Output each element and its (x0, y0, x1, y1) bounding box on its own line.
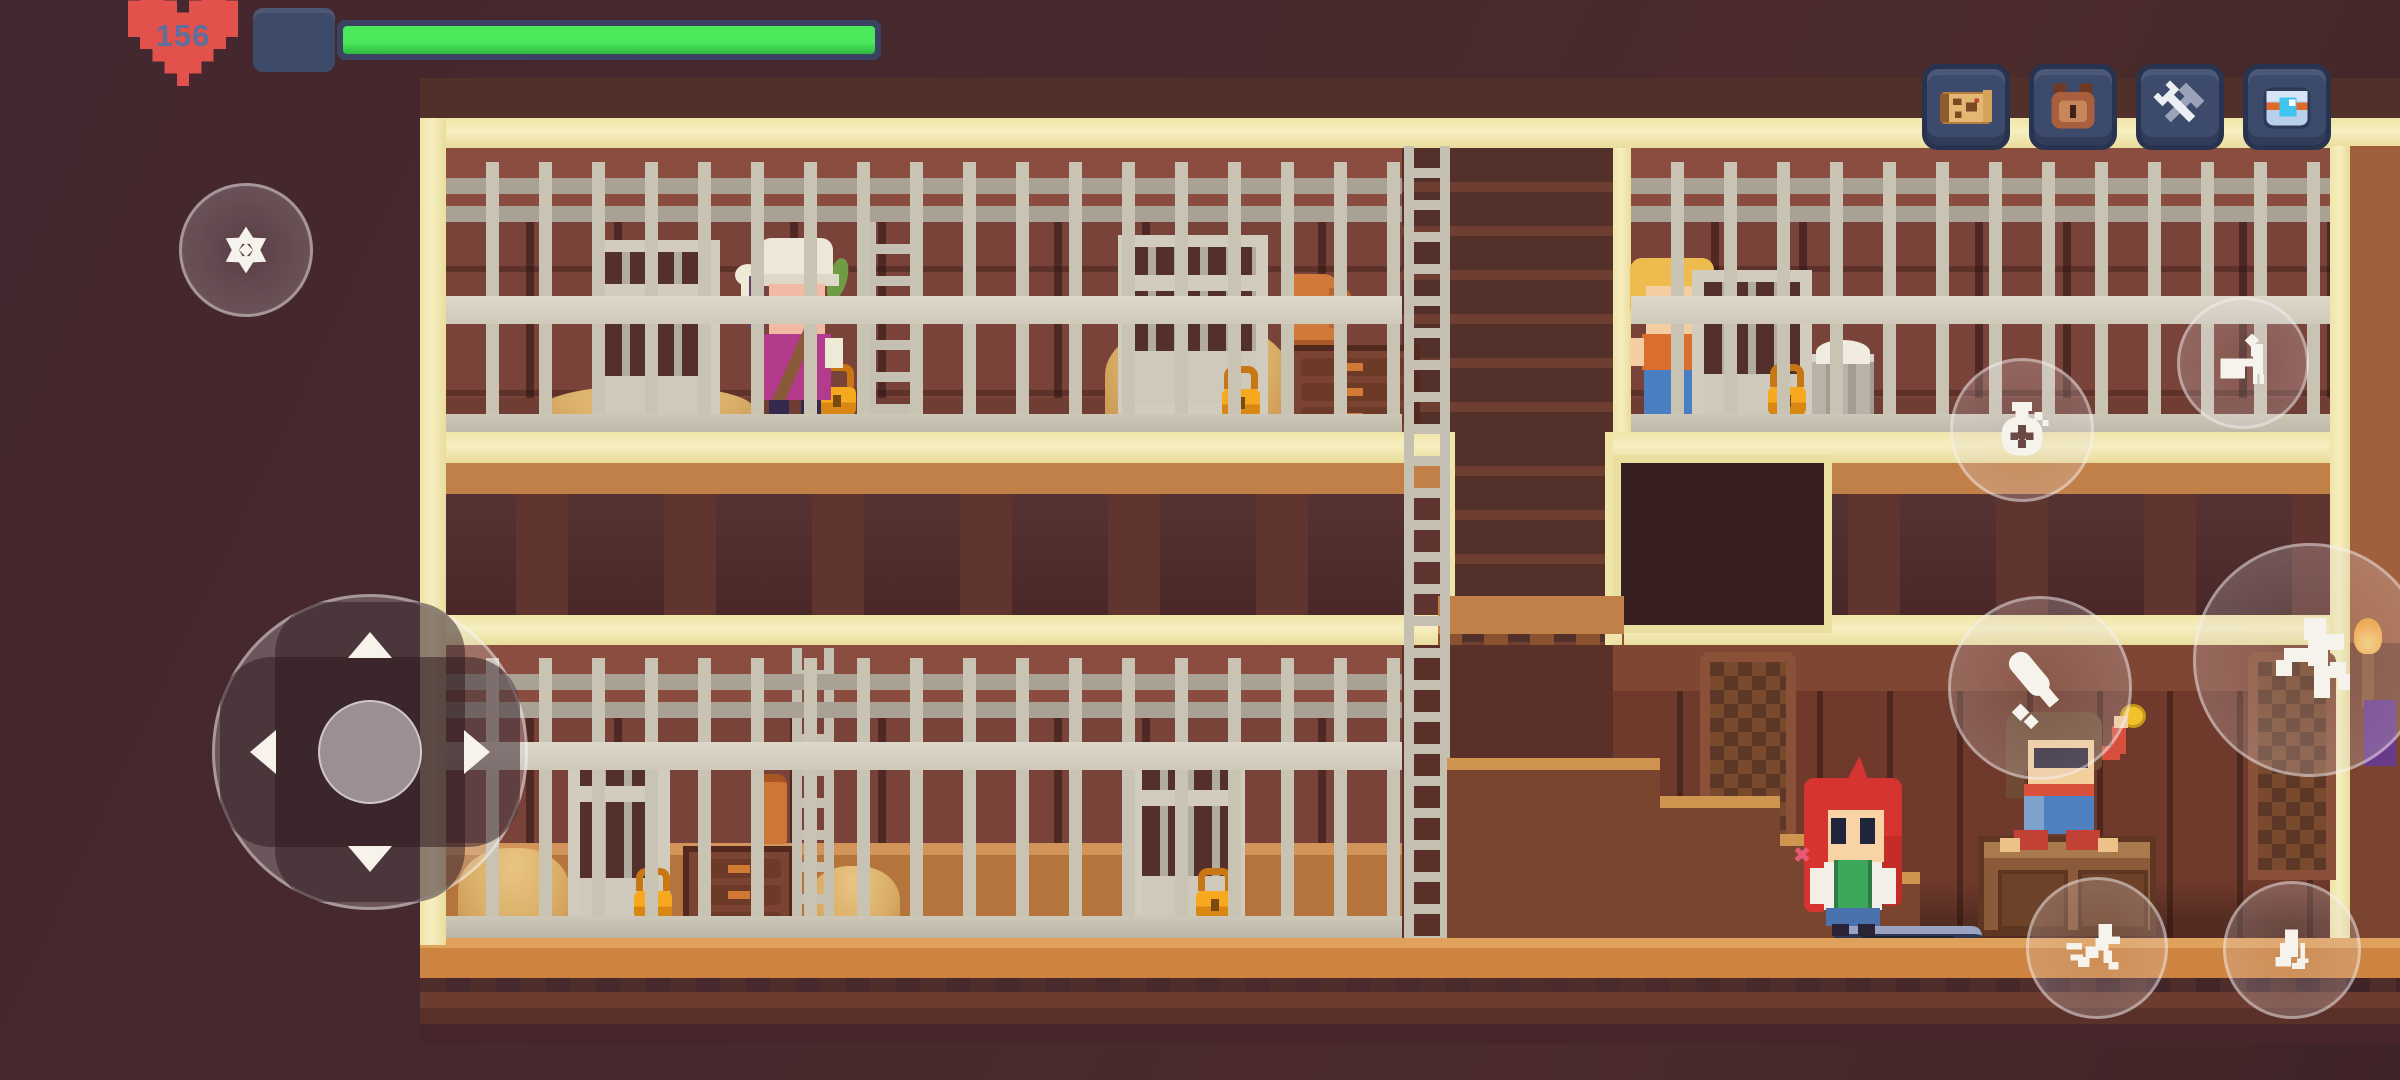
loot-button[interactable] (1950, 358, 2094, 502)
attack-button[interactable] (1948, 596, 2132, 780)
cage-bars (446, 162, 1402, 440)
shoe (2098, 838, 2118, 852)
dpad-down[interactable] (348, 846, 392, 872)
map-scroll-icon (1938, 79, 1994, 135)
jumping-figure-icon (2258, 608, 2362, 712)
stair-step (1660, 796, 1780, 940)
weapon-slot[interactable] (253, 8, 335, 72)
dash-button[interactable] (2026, 877, 2168, 1019)
running-figure-icon (2064, 915, 2130, 981)
sleeve (1810, 868, 1826, 904)
boot (1858, 924, 1875, 936)
blue-chest-icon (2259, 79, 2315, 135)
wrench-hammer-icon (2152, 79, 2208, 135)
stair-column-cap (1438, 596, 1624, 634)
dpad-up[interactable] (348, 632, 392, 658)
health-bar-fill (343, 26, 875, 54)
main-rail (446, 742, 1402, 770)
stair-opening (1613, 455, 1832, 633)
money-bag-icon (1989, 397, 2055, 463)
ladder-tall[interactable] (1404, 146, 1450, 940)
stair-step (1447, 758, 1660, 940)
main-rail (446, 296, 1402, 324)
storage-button[interactable] (2243, 64, 2331, 150)
game-screen: 156 (0, 0, 2400, 1080)
dpad[interactable] (212, 594, 528, 910)
person-at-counter-icon (2214, 334, 2272, 392)
health-heart: 156 (128, 0, 238, 86)
health-value: 156 (128, 18, 238, 54)
interact-button[interactable] (2177, 297, 2309, 429)
crouch-button[interactable] (2223, 881, 2361, 1019)
eye (1831, 818, 1846, 844)
crouching-figure-icon (2261, 919, 2323, 981)
sleeve (1880, 868, 1896, 904)
ability-wheel-button[interactable] (179, 183, 313, 317)
dpad-knob[interactable] (318, 700, 422, 804)
player-red-hair[interactable] (1798, 756, 1908, 936)
health-bar-track (337, 20, 881, 60)
satchel-icon (2045, 79, 2101, 135)
map-button[interactable] (1922, 64, 2010, 150)
vertical-bars (446, 658, 1402, 940)
eye (1860, 818, 1875, 844)
vest (1834, 860, 1872, 912)
cage-bars (446, 658, 1402, 940)
crafting-button[interactable] (2136, 64, 2224, 150)
club-icon (1994, 642, 2086, 734)
inventory-button[interactable] (2029, 64, 2117, 150)
wheel-icon (214, 218, 278, 282)
dpad-left[interactable] (250, 730, 276, 774)
dpad-right[interactable] (464, 730, 490, 774)
leg (2066, 830, 2100, 850)
shoe (2000, 838, 2020, 852)
torso (2024, 796, 2094, 834)
boot (1832, 924, 1849, 936)
